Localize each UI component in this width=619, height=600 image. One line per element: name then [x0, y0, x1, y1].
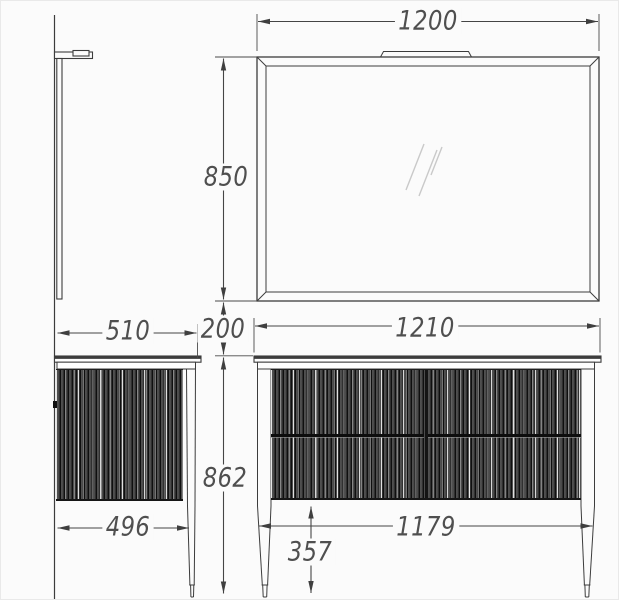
dim-width-body: 1179 — [393, 514, 459, 541]
drawer-vertical-divider — [424, 370, 428, 498]
vanity-front-fluted-panel — [271, 369, 581, 500]
dim-leg-clearance: 357 — [284, 539, 335, 566]
dimension-drawing: 1200 850 200 510 1210 862 496 1179 357 — [0, 0, 619, 600]
mirror-side-view — [55, 51, 93, 300]
dim-wall-gap: 200 — [197, 316, 248, 343]
side-front-leg — [188, 506, 196, 597]
side-handle-notch — [53, 401, 57, 408]
front-left-leg — [258, 506, 272, 597]
dim-depth-top: 510 — [102, 318, 153, 345]
dim-vanity-height: 862 — [199, 465, 250, 492]
dim-mirror-height: 850 — [200, 164, 251, 191]
dim-mirror-width: 1200 — [395, 8, 461, 35]
drawing-linework — [1, 1, 619, 600]
dimension-lines — [58, 22, 600, 594]
dim-depth-body: 496 — [102, 514, 153, 541]
front-right-leg — [581, 506, 595, 597]
vanity-side-fluted-panel — [56, 369, 183, 501]
mirror-glass-hatch-icon — [406, 144, 442, 196]
dim-width-top: 1210 — [392, 315, 458, 342]
mirror-front-view — [257, 52, 599, 302]
mirror-light-tab — [381, 52, 472, 58]
